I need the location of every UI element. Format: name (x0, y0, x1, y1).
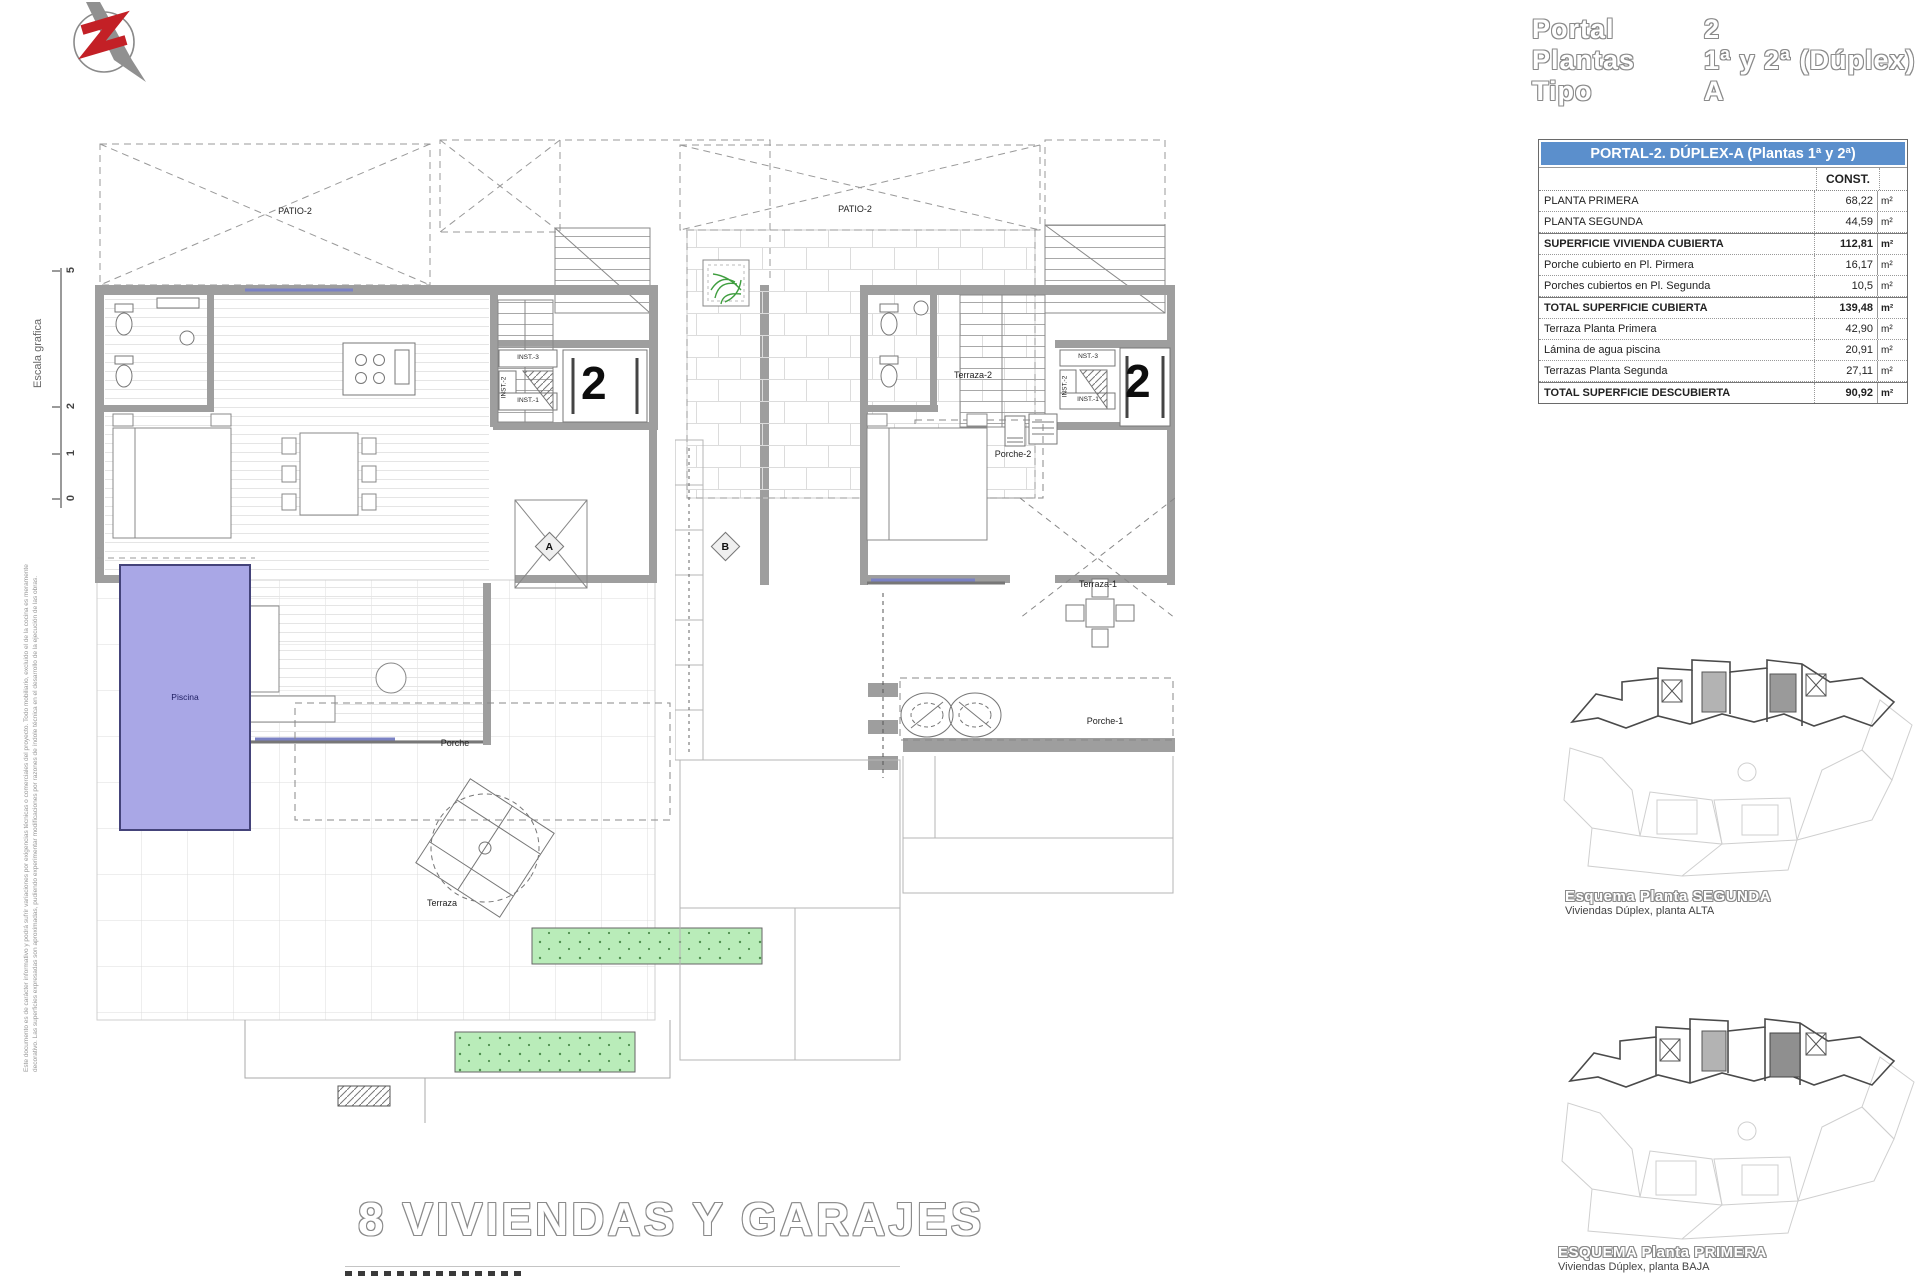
schematic-caption-upper: Esquema Planta SEGUNDA Viviendas Dúplex,… (1565, 888, 1771, 917)
table-row: Lámina de agua piscina20,91m² (1539, 340, 1907, 361)
surface-areas-table: PORTAL-2. DÚPLEX-A (Plantas 1ª y 2ª) CON… (1538, 139, 1908, 404)
plantas-label: Plantas (1532, 45, 1704, 76)
portal-number: 2 (1125, 358, 1151, 404)
bottom-rule (345, 1266, 900, 1267)
scale-tick-0: 0 (65, 495, 77, 501)
second-floor-plan: PATIO-2 Terraza-2 Porche-2 NST.-3 INST.-… (675, 138, 1175, 1068)
scale-tick-2: 2 (65, 403, 77, 409)
table-title: PORTAL-2. DÚPLEX-A (Plantas 1ª y 2ª) (1541, 142, 1905, 165)
bottom-dash-marks (345, 1271, 527, 1276)
table-subheader: CONST. (1539, 167, 1907, 191)
table-row-total: SUPERFICIE VIVIENDA CUBIERTA112,81m² (1539, 233, 1907, 255)
inst1-label: INST.-1 (1063, 396, 1113, 403)
title-block: Portal2 Plantas1ª y 2ª (Dúplex) TipoA (1532, 14, 1916, 107)
legal-disclaimer: Este documento es de carácter informativ… (22, 402, 40, 1072)
porch2-label: Porche-2 (978, 449, 1048, 459)
patio-label: PATIO-2 (260, 206, 330, 216)
scale-line (60, 268, 62, 508)
table-row: PLANTA SEGUNDA44,59m² (1539, 212, 1907, 233)
schematic-title: ESQUEMA Planta PRIMERA (1558, 1244, 1767, 1261)
tipo-value: A (1704, 76, 1725, 107)
inst1-label: INST.-1 (502, 397, 554, 404)
portal-number: 2 (581, 360, 607, 406)
inst2-label: INST.-2 (500, 377, 507, 399)
schematic-caption-lower: ESQUEMA Planta PRIMERA Viviendas Dúplex,… (1558, 1244, 1767, 1273)
const-column-header: CONST. (1816, 168, 1879, 190)
table-row: Terrazas Planta Segunda27,11m² (1539, 361, 1907, 382)
company-logo (52, 2, 152, 86)
porch-label: Porche (425, 738, 485, 748)
scale-tick-1: 1 (65, 450, 77, 456)
patio-label: PATIO-2 (820, 204, 890, 214)
project-footer-title: 8 VIVIENDAS Y GARAJES (358, 1192, 984, 1246)
terrace2-label: Terraza-2 (938, 370, 1008, 380)
table-row-total: TOTAL SUPERFICIE CUBIERTA139,48m² (1539, 297, 1907, 319)
inst2-label: INST.-2 (1061, 376, 1068, 398)
schematic-title: Esquema Planta SEGUNDA (1565, 888, 1771, 905)
table-row: PLANTA PRIMERA68,22m² (1539, 191, 1907, 212)
plan-sheet: Portal2 Plantas1ª y 2ª (Dúplex) TipoA PO… (0, 0, 1920, 1280)
table-row-total: TOTAL SUPERFICIE DESCUBIERTA90,92m² (1539, 382, 1907, 403)
pool-label: Piscina (155, 692, 215, 702)
site-schematic-lower (1560, 985, 1916, 1243)
first-floor-plan: PATIO-2 INST.-3 INST.-2 INST.-1 2 A B Pi… (95, 138, 775, 1123)
table-row: Porche cubierto en Pl. Pirmera16,17m² (1539, 255, 1907, 276)
table-row: Terraza Planta Primera42,90m² (1539, 319, 1907, 340)
porch1-label: Porche-1 (1070, 716, 1140, 726)
terrace1-label: Terraza-1 (1063, 579, 1133, 589)
terrace-label: Terraza (417, 898, 467, 908)
site-schematic-upper (1562, 630, 1914, 880)
scale-tick-5: 5 (65, 267, 77, 273)
scale-label: Escala grafica (32, 319, 44, 388)
portal-value: 2 (1704, 14, 1720, 45)
tipo-label: Tipo (1532, 76, 1704, 107)
second-floor-plan-drawing (675, 138, 1175, 1068)
inst3-label: INST.-3 (502, 354, 554, 361)
schematic-subtitle: Viviendas Dúplex, planta ALTA (1565, 905, 1771, 917)
first-floor-plan-drawing (95, 138, 775, 1123)
portal-label: Portal (1532, 14, 1704, 45)
plantas-value: 1ª y 2ª (Dúplex) (1704, 45, 1916, 76)
inst3-label: NST.-3 (1063, 353, 1113, 360)
schematic-subtitle: Viviendas Dúplex, planta BAJA (1558, 1261, 1767, 1273)
table-row: Porches cubiertos en Pl. Segunda10,5m² (1539, 276, 1907, 297)
